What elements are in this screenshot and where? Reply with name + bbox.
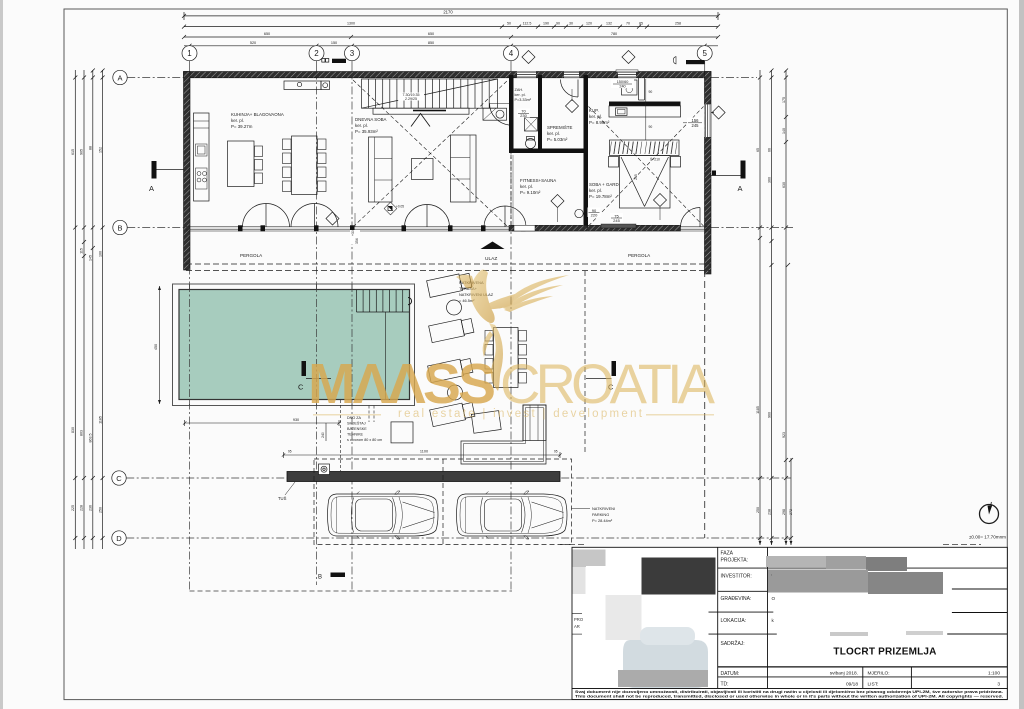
svg-text:P= 8.99m²: P= 8.99m²: [589, 120, 610, 125]
svg-text:2.29/25: 2.29/25: [405, 97, 417, 101]
svg-text:850: 850: [428, 41, 434, 45]
svg-text:3: 3: [350, 49, 355, 58]
svg-text:250: 250: [756, 507, 760, 513]
svg-text:ZAH.: ZAH.: [515, 88, 524, 92]
svg-text:+300: +300: [351, 228, 355, 236]
svg-text:±0.00= 17.70mnm: ±0.00= 17.70mnm: [969, 535, 1006, 540]
svg-text:450: 450: [154, 344, 158, 350]
svg-text:120: 120: [586, 22, 592, 26]
svg-text:P= 28.44m²: P= 28.44m²: [592, 518, 613, 523]
svg-text:TD:: TD:: [721, 682, 729, 688]
svg-text:PARKING: PARKING: [592, 512, 609, 517]
svg-text:354: 354: [355, 238, 359, 244]
svg-text:P= 35.93m²: P= 35.93m²: [355, 129, 378, 134]
svg-text:P= 39.27m: P= 39.27m: [231, 124, 253, 129]
svg-text:SADRŽAJ:: SADRŽAJ:: [721, 639, 745, 647]
svg-text:DNEVNA SOBA: DNEVNA SOBA: [355, 117, 387, 122]
svg-text:225: 225: [71, 505, 75, 511]
svg-text:B: B: [117, 223, 122, 232]
svg-text:ker. pl.: ker. pl.: [589, 188, 602, 193]
svg-text:190: 190: [543, 22, 549, 26]
svg-text:95: 95: [554, 450, 558, 454]
svg-text:3: 3: [997, 682, 1000, 688]
svg-text:4: 4: [509, 49, 514, 58]
svg-text:90: 90: [649, 125, 653, 129]
svg-text:+0.05: +0.05: [396, 205, 404, 209]
svg-text:298: 298: [782, 509, 786, 515]
svg-text:830: 830: [71, 427, 75, 433]
svg-text:240: 240: [321, 432, 325, 438]
svg-text:70: 70: [626, 22, 630, 26]
svg-text:ker. pl.: ker. pl.: [515, 93, 526, 97]
svg-text:MJERILO:: MJERILO:: [868, 671, 890, 677]
svg-text:P=3.33m²: P=3.33m²: [515, 98, 532, 102]
svg-text:145: 145: [89, 255, 93, 261]
svg-text:1300: 1300: [347, 22, 355, 26]
svg-text:115: 115: [80, 248, 84, 254]
svg-text:PERGOLA: PERGOLA: [240, 253, 263, 258]
svg-text:TLOCRT PRIZEMLJA: TLOCRT PRIZEMLJA: [833, 647, 936, 658]
svg-text:LOKACIJA:: LOKACIJA:: [721, 618, 747, 624]
svg-text:215: 215: [634, 174, 638, 180]
svg-text:A: A: [738, 184, 743, 193]
svg-text:615: 615: [71, 149, 75, 155]
svg-text:66: 66: [767, 148, 771, 152]
svg-text:2170: 2170: [443, 10, 453, 15]
svg-text:630: 630: [782, 182, 786, 188]
svg-text:245: 245: [613, 218, 620, 223]
svg-text:BAZENSKE: BAZENSKE: [347, 427, 367, 431]
svg-text:1185: 1185: [756, 406, 760, 414]
svg-text:230: 230: [520, 113, 527, 118]
svg-text:236: 236: [89, 505, 93, 511]
svg-text:INVESTITOR:: INVESTITOR:: [721, 574, 752, 580]
svg-text:520: 520: [250, 41, 256, 45]
svg-text:1185: 1185: [98, 416, 102, 424]
svg-text:FITNESS+SAUNA: FITNESS+SAUNA: [520, 178, 556, 183]
svg-text:132: 132: [606, 22, 612, 26]
svg-text:SMJEŠTAJ: SMJEŠTAJ: [347, 421, 366, 426]
svg-text:650: 650: [264, 32, 270, 36]
svg-text:50: 50: [507, 22, 511, 26]
svg-text:DNO ZA: DNO ZA: [347, 416, 361, 420]
svg-text:Š=210: Š=210: [650, 157, 660, 162]
svg-text:250: 250: [98, 507, 102, 513]
svg-text:PROJEKTA:: PROJEKTA:: [721, 558, 748, 564]
svg-text:CROATIA: CROATIA: [500, 352, 716, 415]
svg-text:This document shall not be rep: This document shall not be reproduced, t…: [575, 695, 1003, 699]
svg-text:P= 19.78m²: P= 19.78m²: [589, 194, 612, 199]
svg-text:152: 152: [98, 147, 102, 153]
svg-text:112.5: 112.5: [523, 22, 532, 26]
svg-text:85: 85: [639, 22, 643, 26]
svg-text:C: C: [298, 383, 304, 392]
svg-text:LIST:: LIST:: [868, 682, 879, 688]
svg-text:175: 175: [782, 97, 786, 103]
svg-text:ker. pl.: ker. pl.: [589, 114, 602, 119]
svg-text:150: 150: [331, 41, 337, 45]
svg-text:': ': [771, 574, 772, 579]
svg-text:FAZA: FAZA: [721, 551, 734, 557]
svg-text:P= 5.03m²: P= 5.03m²: [547, 137, 568, 142]
svg-text:930: 930: [293, 418, 299, 422]
svg-text:O: O: [772, 596, 776, 601]
svg-text:TUŠ: TUŠ: [278, 496, 287, 501]
svg-text:A: A: [149, 184, 154, 193]
svg-text:GRAĐEVINA:: GRAĐEVINA:: [721, 596, 752, 602]
svg-text:KUP.: KUP.: [589, 108, 599, 113]
svg-text:90: 90: [556, 22, 560, 26]
svg-text:SOBA + GARD: SOBA + GARD: [589, 182, 619, 187]
svg-text:SPREMIŠTE: SPREMIŠTE: [547, 125, 572, 130]
svg-text:228: 228: [80, 505, 84, 511]
svg-text:MΛΛSS: MΛΛSS: [308, 352, 494, 416]
svg-text:238: 238: [767, 509, 771, 515]
svg-text:TEHNIKE: TEHNIKE: [347, 433, 364, 437]
svg-text:D: D: [116, 534, 122, 543]
svg-text:ker. pl.: ker. pl.: [547, 131, 560, 136]
svg-text:1: 1: [187, 49, 192, 58]
svg-text:A: A: [117, 73, 122, 82]
svg-text:240: 240: [619, 84, 625, 88]
svg-text:95: 95: [288, 450, 292, 454]
svg-text:PRO: PRO: [574, 617, 584, 622]
svg-text:5: 5: [702, 49, 707, 58]
svg-text:KUHINJA+ BLAGOVAONA: KUHINJA+ BLAGOVAONA: [231, 112, 284, 117]
svg-text:140: 140: [782, 128, 786, 134]
svg-text:real estate | invest | develop: real estate | invest | development: [398, 408, 643, 420]
svg-text:780: 780: [611, 32, 617, 36]
svg-text:360: 360: [767, 177, 771, 183]
svg-text:258: 258: [675, 22, 681, 26]
svg-text:ker. pl.: ker. pl.: [355, 123, 368, 128]
svg-text:30: 30: [569, 22, 573, 26]
svg-text:1100: 1100: [420, 450, 428, 454]
svg-text:2: 2: [314, 49, 319, 58]
svg-text:C: C: [116, 474, 122, 483]
svg-text:svibanj 2018.: svibanj 2018.: [830, 671, 858, 677]
svg-text:65: 65: [756, 148, 760, 152]
svg-text:AR: AR: [574, 624, 580, 629]
svg-text:220: 220: [591, 212, 598, 217]
svg-text:650: 650: [428, 32, 434, 36]
svg-text:90: 90: [649, 90, 653, 94]
svg-text:P= 9.10m²: P= 9.10m²: [520, 190, 541, 195]
svg-text:272: 272: [789, 509, 793, 515]
svg-text:PERGOLA: PERGOLA: [628, 253, 651, 258]
svg-text:245: 245: [692, 123, 700, 128]
svg-text:100: 100: [98, 251, 102, 257]
svg-text:DATUM:: DATUM:: [721, 671, 740, 677]
svg-text:88: 88: [89, 146, 93, 150]
svg-text:1:100: 1:100: [988, 671, 1000, 677]
svg-text:Svaj dokument nije dozvoljeno: Svaj dokument nije dozvoljeno umnožavati…: [575, 690, 1003, 694]
svg-text:s otvorom 80 x 80 cm: s otvorom 80 x 80 cm: [347, 438, 382, 442]
svg-text:ker. pl.: ker. pl.: [520, 184, 533, 189]
svg-text:863.5: 863.5: [89, 434, 93, 443]
svg-text:09/18: 09/18: [846, 682, 858, 688]
svg-text:905: 905: [80, 149, 84, 155]
svg-text:803: 803: [80, 430, 84, 436]
svg-text:B: B: [318, 575, 322, 581]
svg-text:NATKRIVENI: NATKRIVENI: [592, 506, 615, 511]
svg-text:ker. pl.: ker. pl.: [231, 118, 244, 123]
svg-text:ULAZ: ULAZ: [485, 256, 497, 262]
svg-text:923: 923: [782, 432, 786, 438]
svg-text:960: 960: [767, 412, 771, 418]
